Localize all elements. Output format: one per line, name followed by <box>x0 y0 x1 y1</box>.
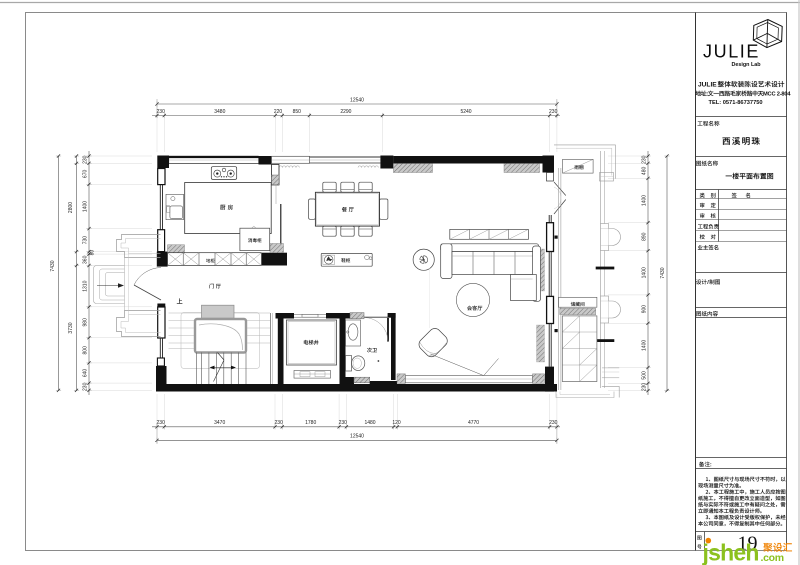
svg-text:4770: 4770 <box>468 420 479 426</box>
svg-text:TEL: 0571-86737750: TEL: 0571-86737750 <box>709 100 763 106</box>
svg-text:640: 640 <box>83 369 89 378</box>
svg-text:230: 230 <box>83 382 89 391</box>
svg-text:730: 730 <box>83 236 89 245</box>
svg-text:3470: 3470 <box>214 420 225 426</box>
svg-text:120: 120 <box>392 420 401 426</box>
svg-text:1780: 1780 <box>305 420 316 426</box>
svg-text:230: 230 <box>549 109 558 115</box>
svg-text:3730: 3730 <box>68 322 74 333</box>
svg-text:480: 480 <box>641 167 647 176</box>
svg-text:12540: 12540 <box>350 434 364 440</box>
svg-text:2800: 2800 <box>68 202 74 213</box>
svg-text:5240: 5240 <box>460 109 471 115</box>
svg-text:980: 980 <box>83 318 89 327</box>
svg-text:jsheh: jsheh <box>702 540 759 565</box>
svg-text:670: 670 <box>83 170 89 179</box>
svg-text:890: 890 <box>641 232 647 241</box>
svg-text:1400: 1400 <box>83 201 89 212</box>
svg-text:230: 230 <box>157 420 166 426</box>
svg-text:1400: 1400 <box>641 195 647 206</box>
svg-text:Design Lab: Design Lab <box>732 62 762 68</box>
svg-text:230: 230 <box>641 155 647 164</box>
svg-text:900: 900 <box>641 305 647 314</box>
svg-text:360: 360 <box>83 255 89 264</box>
svg-text:850: 850 <box>293 109 302 115</box>
svg-text:230: 230 <box>83 155 89 164</box>
svg-text:80: 80 <box>90 250 96 256</box>
svg-text:500: 500 <box>641 371 647 380</box>
svg-text:230: 230 <box>549 420 558 426</box>
svg-text:7430: 7430 <box>660 267 666 278</box>
svg-text:MCC 2-804: MCC 2-804 <box>763 92 791 98</box>
svg-text:7430: 7430 <box>50 260 56 271</box>
svg-text:230: 230 <box>275 420 284 426</box>
svg-text:230: 230 <box>157 109 166 115</box>
svg-text:800: 800 <box>83 346 89 355</box>
svg-text:2290: 2290 <box>340 109 351 115</box>
svg-text:JULIE: JULIE <box>703 42 760 62</box>
svg-text:JULIE: JULIE <box>698 82 717 89</box>
svg-text:.com: .com <box>761 552 784 564</box>
svg-text:1310: 1310 <box>83 280 89 291</box>
svg-text:12540: 12540 <box>350 97 364 103</box>
svg-text:220: 220 <box>274 109 283 115</box>
svg-text:230: 230 <box>339 420 348 426</box>
svg-text:3480: 3480 <box>214 109 225 115</box>
svg-text:1480: 1480 <box>364 420 375 426</box>
svg-text:230: 230 <box>641 383 647 392</box>
svg-text:1400: 1400 <box>641 267 647 278</box>
svg-text:1400: 1400 <box>641 340 647 351</box>
